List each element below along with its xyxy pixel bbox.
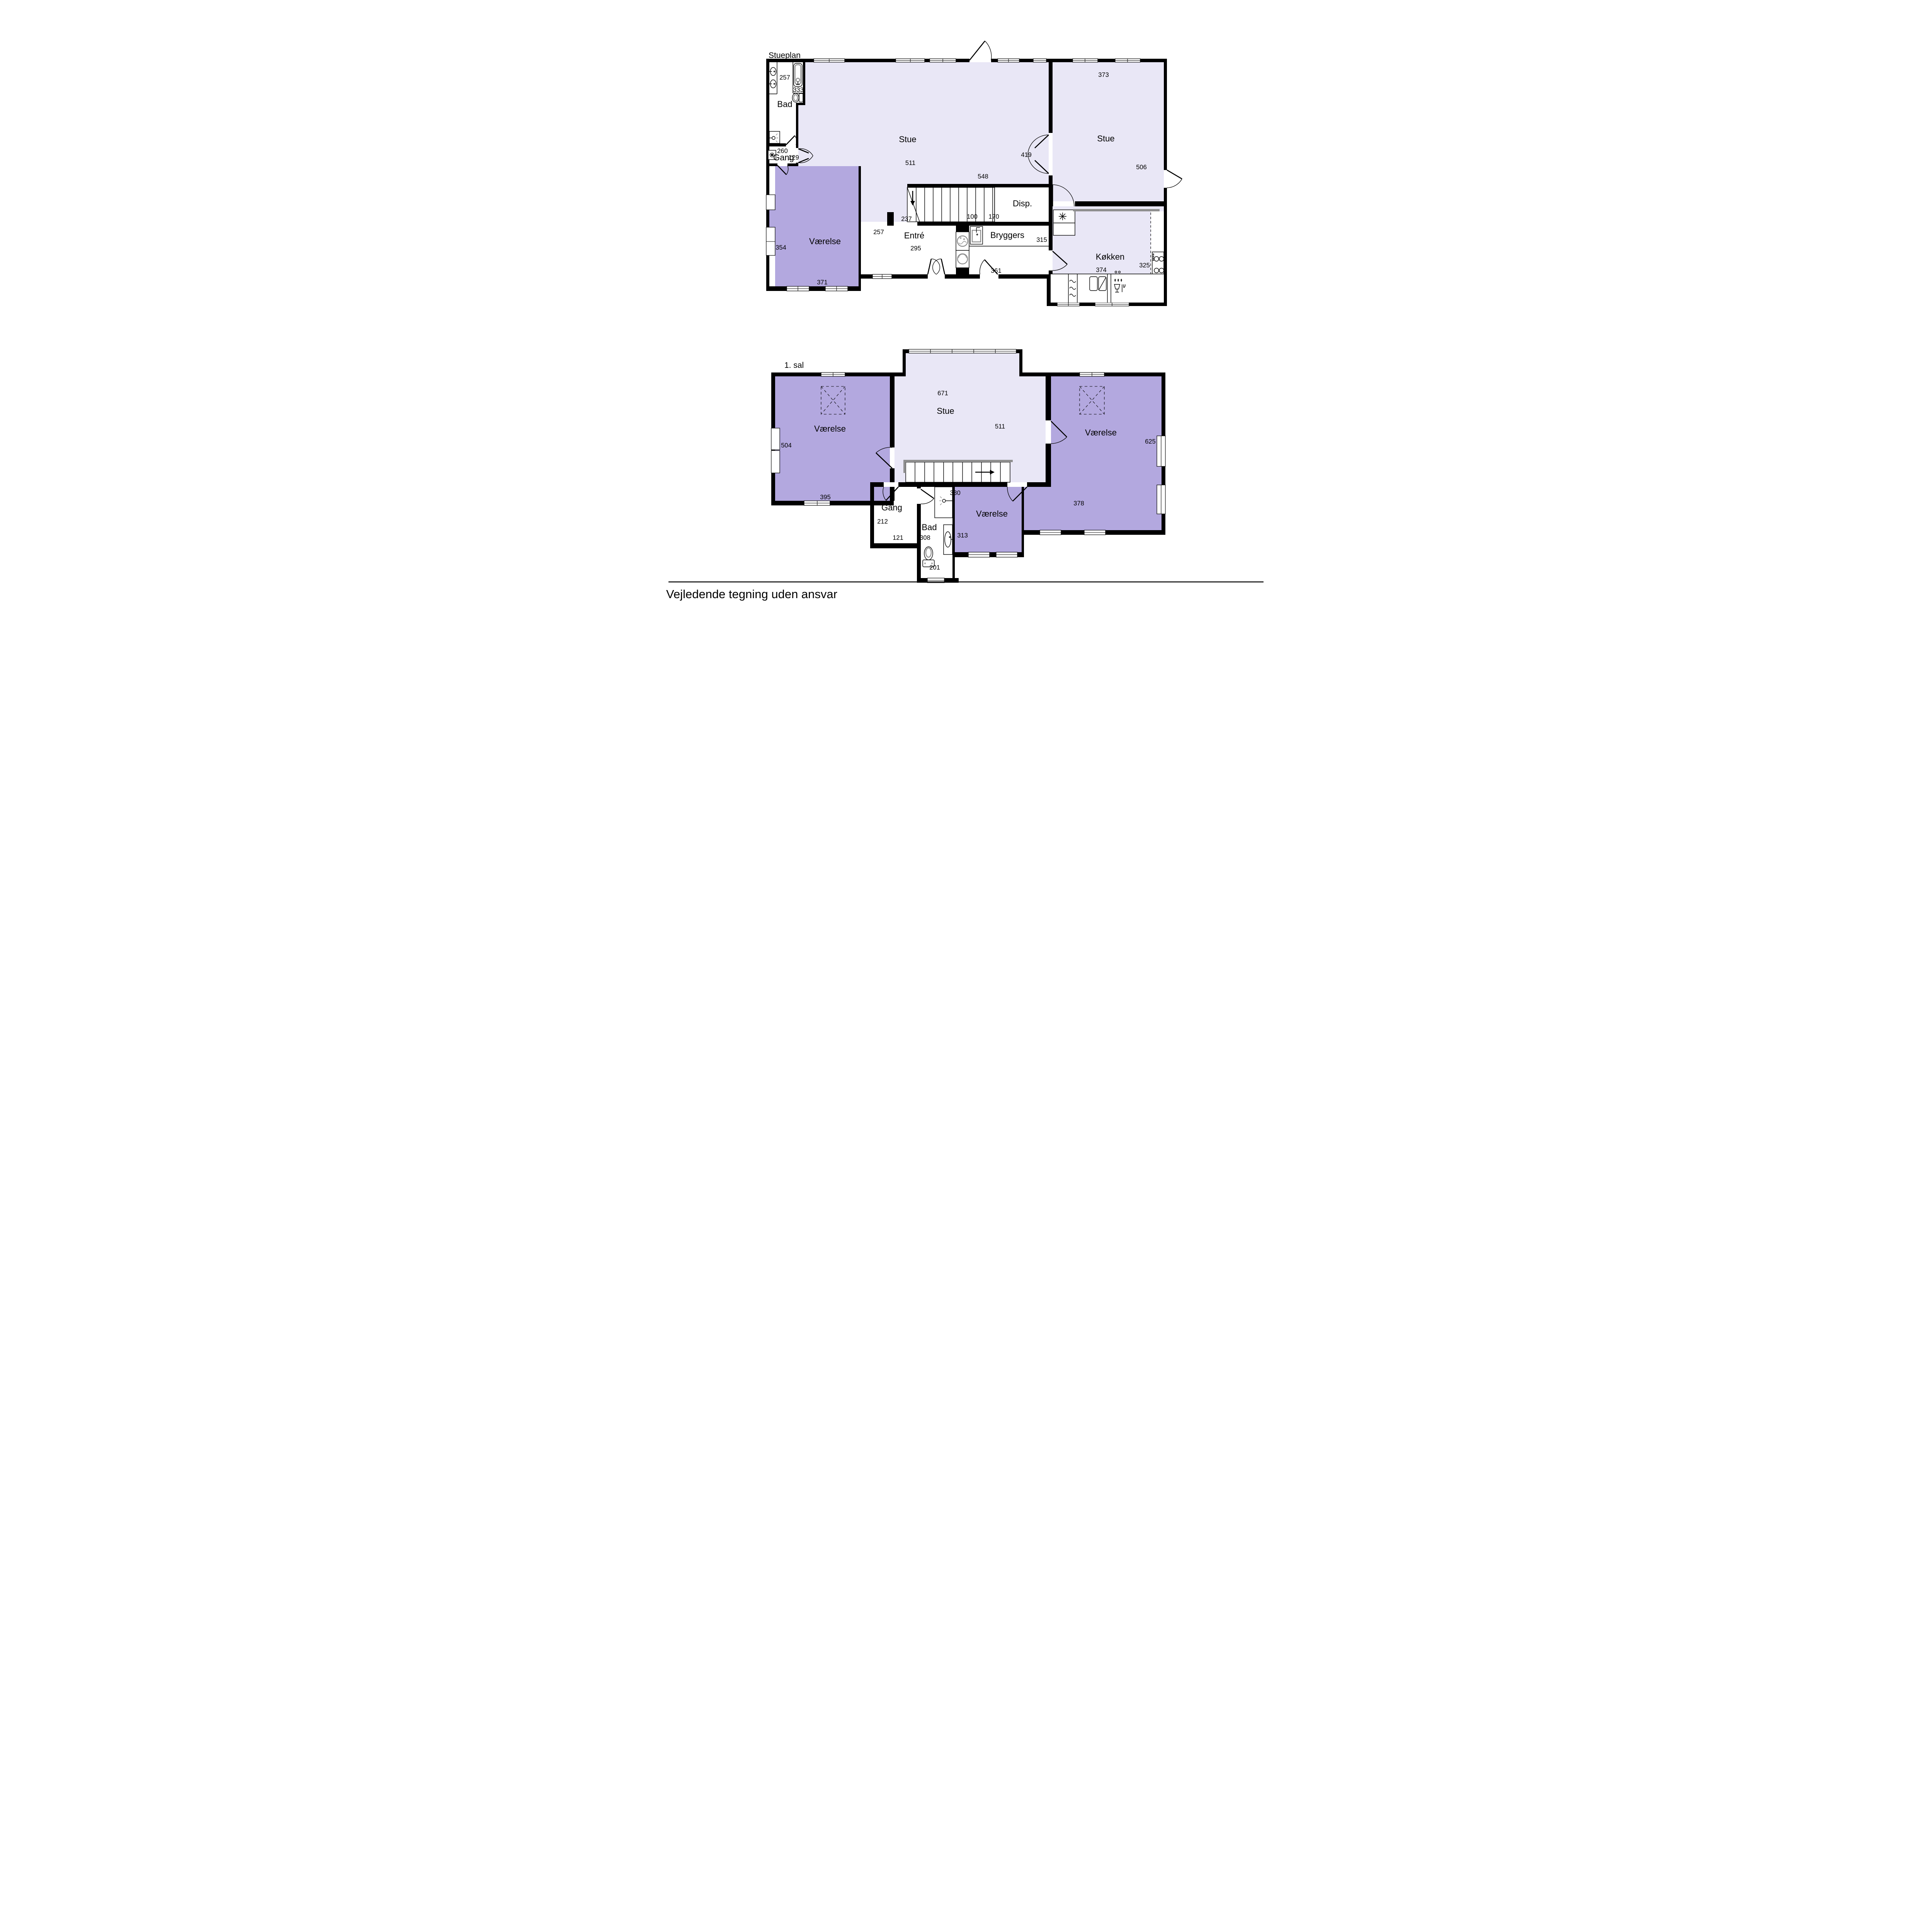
floor-plan-drawing: Stueplan	[663, 0, 1269, 606]
dim-stue-height: 511	[995, 423, 1005, 430]
disclaimer-text: Vejledende tegning uden ansvar	[666, 587, 837, 601]
washer-icon	[956, 232, 969, 250]
floor-title-first: 1. sal	[784, 361, 804, 370]
room-label-vaerelse-left: Værelse	[814, 424, 846, 434]
dim-stairs: 548	[978, 173, 988, 180]
dim-gang-width: 260	[777, 148, 788, 155]
dim-vaerelse-right-height: 625	[1145, 438, 1156, 445]
room-fill-vaerelse	[775, 166, 859, 286]
stairs-first	[903, 460, 1013, 482]
room-label-gang: Gang	[881, 503, 902, 512]
room-label-stue-right: Stue	[1097, 134, 1114, 143]
dim-passage: 237	[901, 216, 912, 223]
room-label-bryggers: Bryggers	[990, 230, 1024, 240]
dim-bryggers-door: 361	[991, 267, 1002, 274]
room-label-disp: Disp.	[1013, 199, 1032, 208]
floor-title-ground: Stueplan	[769, 51, 801, 60]
stairs-ground	[907, 187, 995, 222]
dim-bad-door: 201	[929, 564, 940, 571]
dim-koekken-height: 325	[1139, 262, 1150, 269]
bathroom-sinks	[769, 62, 777, 94]
sink-icon	[769, 68, 776, 76]
ground-floor-plan: Stueplan	[766, 41, 1182, 306]
dim-stue-width: 671	[937, 390, 948, 397]
room-label-koekken: Køkken	[1096, 252, 1125, 262]
dim-stue2-width: 373	[1098, 71, 1109, 78]
dryer-icon	[956, 250, 969, 268]
dim-vaerelse-height: 354	[776, 244, 786, 251]
room-label-stue: Stue	[937, 406, 954, 416]
sink-icon	[944, 525, 952, 554]
room-label-vaerelse: Værelse	[809, 236, 841, 246]
room-label-stue-left: Stue	[899, 134, 916, 144]
dim-bad-width: 257	[779, 74, 790, 81]
room-fill-vaerelse-mid	[955, 487, 1022, 552]
dim-gang-width: 121	[893, 534, 903, 541]
dim-bad-width: 308	[920, 534, 930, 541]
dim-gang-height: 212	[877, 518, 888, 525]
room-label-vaerelse-mid: Værelse	[976, 509, 1008, 519]
room-fill-stue-right	[1053, 62, 1164, 201]
dim-koekken-width: 374	[1096, 267, 1107, 274]
room-label-entre: Entré	[904, 231, 925, 240]
dim-vaerelse-left-height: 504	[781, 442, 792, 449]
dim-double-door: 419	[1021, 151, 1032, 158]
shower-icon	[769, 131, 780, 143]
dim-entre-door: 295	[910, 245, 921, 252]
side-entry-door	[1167, 170, 1182, 188]
snowflake-icon	[1059, 213, 1066, 220]
kitchen-counter-row	[1051, 271, 1164, 303]
room-fill-vaerelse-bump	[769, 210, 775, 227]
entre-double-door-295	[928, 259, 945, 274]
dim-vaerelse-right-width: 378	[1073, 500, 1084, 507]
dim-stue2-height: 506	[1136, 164, 1147, 171]
first-floor-plan: 1. sal	[771, 349, 1165, 583]
room-label-bad: Bad	[922, 522, 937, 532]
room-fill-vaerelse-right-bottom	[1024, 482, 1162, 530]
dim-disp-b: 170	[988, 213, 999, 220]
floor-plan-sheet: Stueplan	[663, 0, 1269, 606]
dim-entre-height: 257	[873, 229, 884, 236]
dim-vaerelse-mid-width: 330	[950, 490, 961, 497]
footer: Vejledende tegning uden ansvar	[666, 582, 1264, 601]
sink-icon	[769, 80, 776, 88]
dim-vaerelse-width: 371	[817, 279, 828, 286]
dim-stue-height: 511	[905, 160, 915, 167]
entry-door-top	[969, 41, 992, 60]
fridge-icon	[1053, 210, 1075, 235]
dim-vaerelse-mid-height: 313	[957, 532, 968, 539]
gang-bad-door	[921, 489, 934, 504]
toilet-icon	[793, 94, 803, 102]
room-label-bad: Bad	[777, 99, 792, 109]
dim-vaerelse-left-width: 395	[820, 494, 831, 501]
room-fills	[775, 353, 1162, 552]
room-label-vaerelse-right: Værelse	[1085, 428, 1117, 437]
dim-gang-door: 129	[788, 154, 799, 161]
kitchen-counter-edge	[1073, 209, 1160, 211]
dim-disp-a: 100	[967, 213, 978, 220]
dim-bryggers-height: 315	[1036, 236, 1047, 243]
dim-toilet: 333	[793, 87, 804, 94]
room-fill-vaerelse-left	[775, 376, 890, 501]
bryggers-sink-icon	[970, 226, 983, 244]
